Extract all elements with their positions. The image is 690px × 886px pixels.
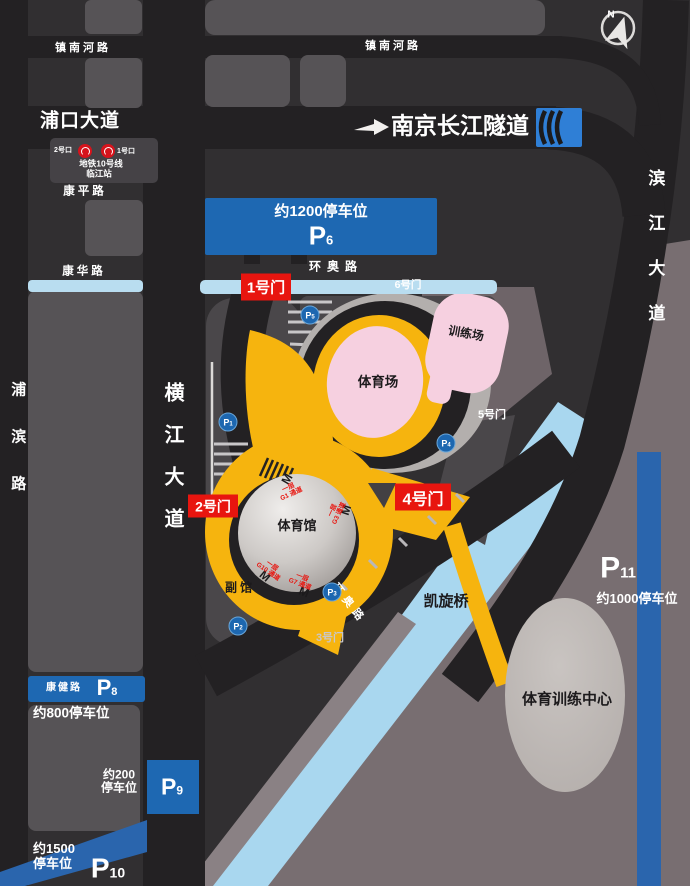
p10-letter: P <box>91 853 110 884</box>
metro-exit2-label: 2号口 <box>54 147 72 155</box>
parking-p11-lot <box>637 452 661 886</box>
road-label-zhennanhe-east: 镇南河路 <box>365 40 421 52</box>
p6-number: 6 <box>326 233 333 248</box>
stadium-traffic-map: N 镇南河路 镇南河路 浦口大道 康平路 康华路 浦滨路 横江大道 滨江大道 南… <box>0 0 690 886</box>
road-label-kangping: 康平路 <box>63 186 107 199</box>
map-shape-layer <box>0 0 690 886</box>
metro-logo-icon <box>101 144 115 158</box>
parking-marker-p2: P2 <box>229 617 248 636</box>
metro-station-label: 临江站 <box>86 169 112 178</box>
parking-marker-p5: P5 <box>301 306 320 325</box>
venue-label-gymnasium: 体育馆 <box>277 519 316 533</box>
gate-4: 4号门 <box>395 484 451 511</box>
gate-6-label: 6号门 <box>395 280 422 292</box>
parking-p11-label: P11 <box>600 552 636 585</box>
parking-p10-label: P10 <box>91 854 125 885</box>
parking-p9-capacity-line2: 停车位 <box>101 781 137 794</box>
road-label-zhennanhe-west: 镇南河路 <box>55 42 111 54</box>
p9-number: 9 <box>176 783 183 797</box>
compass-north-label: N <box>607 10 614 21</box>
p11-number: 11 <box>620 565 636 582</box>
road-label-huanao-north: 环奥路 <box>309 260 363 273</box>
metro-line-label: 地铁10号线 <box>79 159 122 168</box>
parking-marker-p4: P4 <box>437 434 456 453</box>
parking-p8-label: P8 <box>97 676 118 700</box>
gate-2-label: 2号门 <box>195 496 231 516</box>
gate-5-label: 5号门 <box>478 409 506 421</box>
p4-number: 4 <box>447 442 450 448</box>
gate-1: 1号门 <box>241 274 291 301</box>
road-label-kangjian: 康健路 <box>46 683 82 694</box>
venue-label-annex: 副馆 <box>225 581 255 594</box>
p9-letter: P <box>161 773 176 799</box>
kanghua-band <box>28 280 143 292</box>
parking-p6-label: P6 <box>309 222 334 251</box>
parking-p9-label: P9 <box>161 774 183 799</box>
p5-number: 5 <box>311 314 314 320</box>
p6-letter: P <box>309 221 326 251</box>
metro-logo-icon <box>78 144 92 158</box>
tunnel-label: 南京长江隧道 <box>391 113 529 138</box>
parking-p10-capacity-line2: 停车位 <box>33 857 72 871</box>
gate-1-label: 1号门 <box>247 277 285 298</box>
gate-4-label: 4号门 <box>403 485 444 509</box>
p11-letter: P <box>600 552 620 585</box>
bridge-label-kaixuan: 凯旋桥 <box>423 594 468 611</box>
gate-3-label: 3号门 <box>316 632 344 644</box>
parking-p11-capacity: 约1000停车位 <box>597 592 678 606</box>
p10-number: 10 <box>110 865 126 881</box>
venue-label-training-center: 体育训练中心 <box>522 692 612 709</box>
parking-p8-capacity: 约800停车位 <box>33 707 110 722</box>
p6-notch-2 <box>291 255 307 264</box>
road-label-binjiang-avenue: 滨江大道 <box>645 169 664 349</box>
road-label-kanghua: 康华路 <box>62 266 106 279</box>
p1-number: 1 <box>229 421 232 427</box>
p6-notch-1 <box>244 255 260 264</box>
metro-exit1-label: 1号口 <box>117 148 135 156</box>
gate-2: 2号门 <box>188 495 238 518</box>
road-label-pukou-avenue: 浦口大道 <box>40 112 120 133</box>
venue-label-stadium: 体育场 <box>358 376 399 391</box>
road-label-hengjiang-avenue: 横江大道 <box>161 382 183 550</box>
p2-number: 2 <box>239 625 242 631</box>
p8-number: 8 <box>111 686 117 698</box>
parking-p6-capacity: 约1200停车位 <box>274 204 367 221</box>
parking-marker-p1: P1 <box>219 413 238 432</box>
road-label-pubin: 浦滨路 <box>9 382 26 523</box>
parking-p10-capacity-line1: 约1500 <box>33 842 75 856</box>
parking-marker-p3: P3 <box>323 583 342 602</box>
p3-number: 3 <box>333 591 336 597</box>
p8-letter: P <box>97 675 112 700</box>
